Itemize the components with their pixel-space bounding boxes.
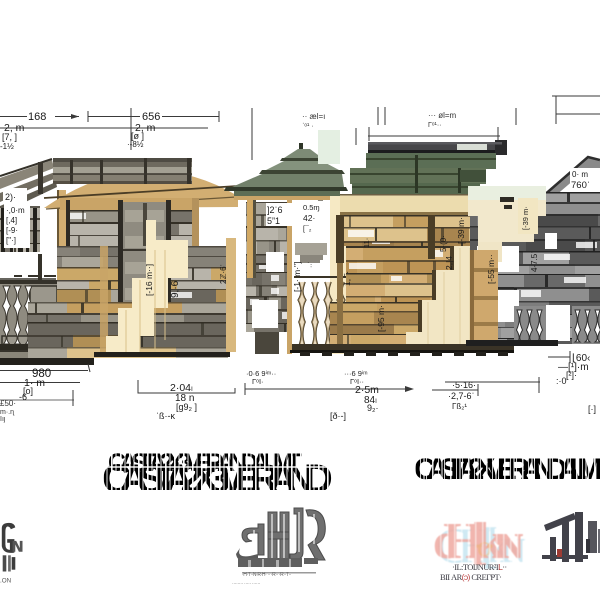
svg-text:[¯₂: [¯₂ — [303, 225, 312, 233]
svg-text:ˈß·-ĸ: ˈß·-ĸ — [156, 411, 175, 421]
svg-text:5·(0·: 5·(0· — [439, 235, 448, 252]
svg-text:[-9·: [-9· — [6, 226, 18, 235]
svg-text:9₂·: 9₂· — [367, 403, 379, 413]
svg-text:Γᵒ¹··: Γᵒ¹·· — [428, 122, 442, 129]
svg-text:]2ˈ6: ]2ˈ6 — [267, 205, 283, 215]
svg-text:42·: 42· — [303, 213, 315, 223]
svg-text:-6: -6 — [19, 392, 27, 402]
svg-text:5”1: 5”1 — [267, 216, 280, 226]
svg-text:[-39 m·: [-39 m· — [456, 217, 466, 244]
svg-text:[²]·: [²]· — [566, 370, 577, 380]
svg-text:[g9₂ ]: [g9₂ ] — [176, 402, 197, 412]
svg-text:0.5ɱ: 0.5ɱ — [303, 203, 320, 212]
svg-text:·-8½: ·-8½ — [127, 140, 144, 149]
svg-text:Ιıȷ: Ιıȷ — [0, 416, 6, 423]
svg-text:£50·: £50· — [0, 399, 16, 408]
svg-text:········ ····· ······: ········ ····· ······ — [232, 581, 261, 587]
svg-text:·2,7-6ˈ: ·2,7-6ˈ — [448, 391, 475, 401]
svg-text:m·.ɳ: m·.ɳ — [0, 409, 15, 416]
svg-text:··· øl=m: ··· øl=m — [428, 111, 457, 120]
svg-text:[-39 m·: [-39 m· — [521, 206, 530, 230]
svg-text:760ˈ: 760ˈ — [571, 180, 590, 191]
svg-text:·H·T··N·R·H· ·· ·R·· ·R··T··: ·H·T··N·R·H· ·· ·R·· ·R··T·· — [242, 572, 292, 578]
svg-text:1, ˜·: 1, ˜· — [342, 271, 352, 286]
svg-text:·· æl=ı: ·· æl=ı — [302, 112, 325, 121]
svg-text:168: 168 — [28, 111, 46, 123]
svg-text:ΓᵒΙ·: ΓᵒΙ· — [252, 377, 264, 386]
svg-text:·,0·m: ·,0·m — [6, 206, 25, 215]
svg-text:11·: 11· — [362, 238, 371, 248]
svg-text:Γß₂¹: Γß₂¹ — [452, 402, 467, 411]
svg-text::·0: :·0 — [556, 376, 567, 386]
svg-text:4-7.5ˈ: 4-7.5ˈ — [530, 251, 539, 272]
svg-text:[ð·-]: [ð·-] — [330, 411, 346, 421]
svg-text:.ON: .ON — [0, 577, 12, 584]
svg-text:ˈᵒ¹ ·: ˈᵒ¹ · — [302, 122, 314, 130]
svg-text:[·]: [·] — [588, 404, 596, 414]
svg-text:[-95 m·: [-95 m· — [376, 305, 386, 332]
svg-text:0· m: 0· m — [572, 170, 588, 179]
svg-text:2ℤ·6ˈ: 2ℤ·6ˈ — [219, 264, 228, 284]
svg-text:[-1· m·"]: [-1· m·"] — [292, 262, 302, 292]
svg-text:["·]: ["·] — [6, 236, 16, 245]
svg-text:[-16 m··]: [-16 m··] — [144, 264, 154, 296]
svg-text:[-55 m··: [-55 m·· — [486, 254, 496, 284]
svg-text:[,4]: [,4] — [6, 216, 17, 225]
svg-text:2)·: 2)· — [5, 192, 16, 202]
svg-text:9,·6: 9,·6 — [170, 280, 181, 298]
svg-text:··ˈ: ··ˈ — [307, 261, 315, 268]
svg-text:2,|4: 2,|4 — [444, 256, 454, 270]
svg-text:-1½: -1½ — [0, 142, 14, 151]
svg-text:[7, ]: [7, ] — [2, 132, 17, 142]
